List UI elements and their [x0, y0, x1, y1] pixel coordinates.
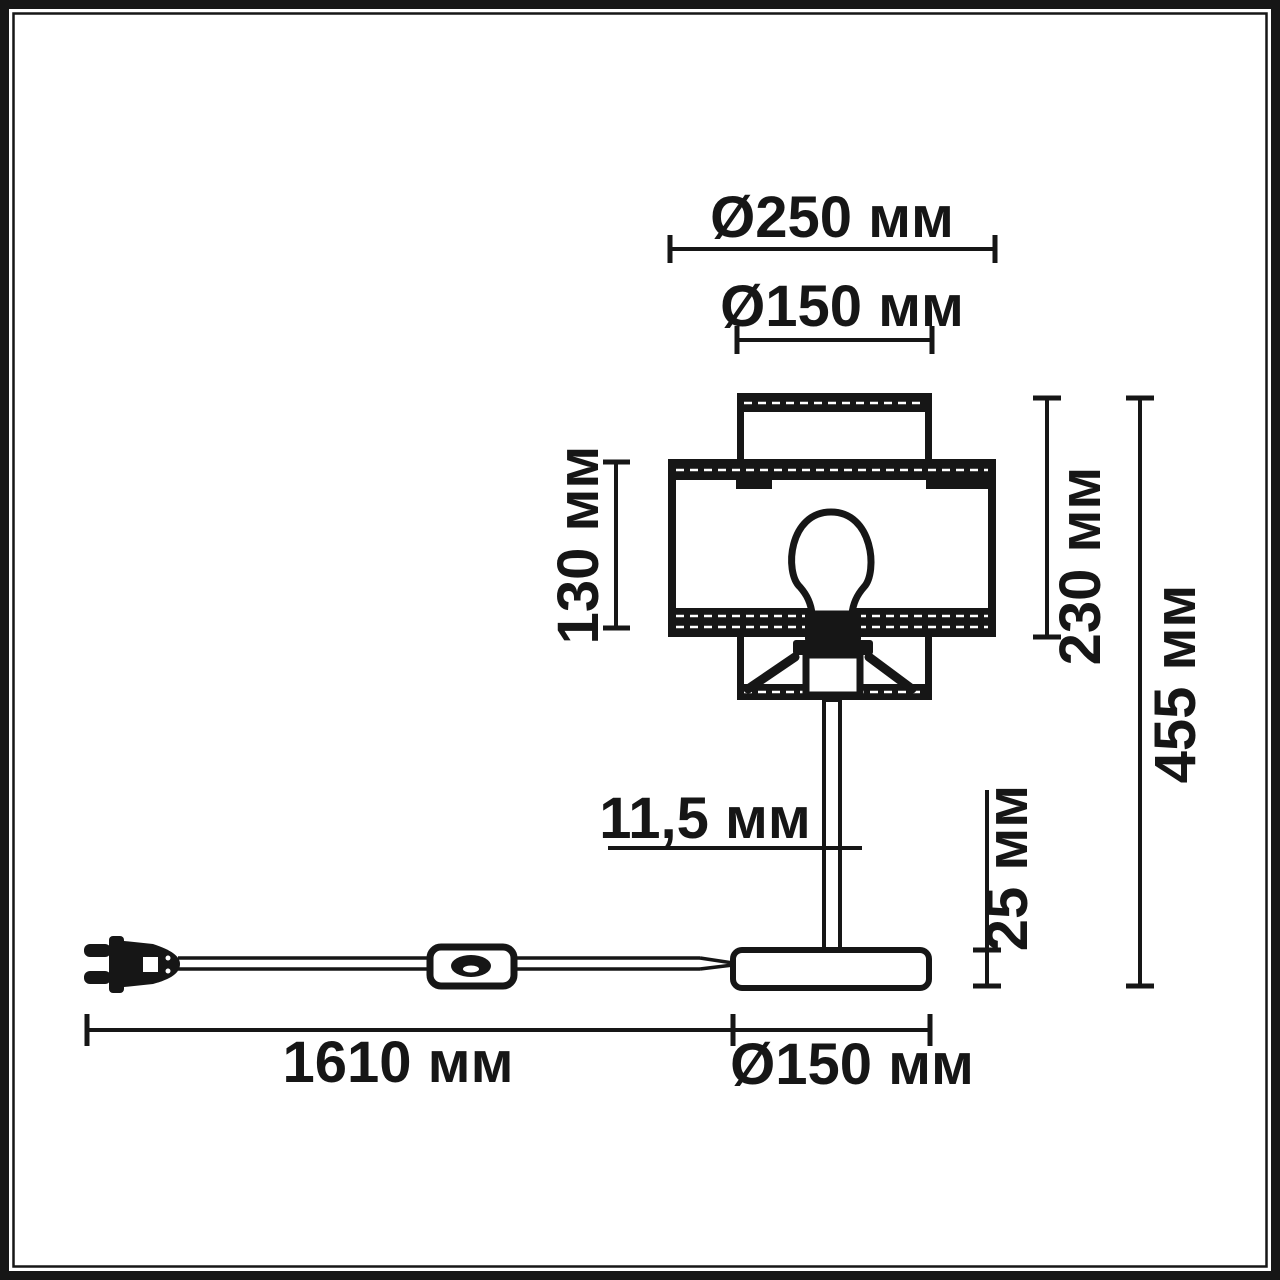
dim-shade-outer-diameter: Ø250 мм [670, 185, 995, 263]
cable-segment-left [178, 958, 430, 969]
dim-shade-outer-diameter-label: Ø250 мм [710, 185, 954, 250]
lamp-stem [824, 700, 840, 952]
dim-shade-height-label: 130 мм [546, 446, 611, 645]
socket-body [805, 612, 861, 642]
inline-switch [430, 947, 514, 986]
dim-total-height: 455 мм [1126, 398, 1208, 986]
shade-inner-right-wall-upper [925, 393, 932, 462]
plug-rivet-top [166, 956, 171, 961]
shade-top-tab-left [736, 480, 772, 489]
dim-base-diameter-label: Ø150 мм [730, 1032, 974, 1097]
dim-base-height: 25 мм [973, 785, 1040, 986]
cable-taper-into-base [700, 958, 733, 969]
power-plug [84, 936, 180, 993]
plug-rivet-bottom [166, 969, 171, 974]
dim-total-height-label: 455 мм [1143, 585, 1208, 784]
switch-button-highlight [463, 966, 479, 973]
plug-prong-bottom [84, 971, 111, 984]
shade-top-tab-right [926, 480, 988, 489]
dim-shade-top-diameter: Ø150 мм [720, 274, 964, 354]
light-bulb [792, 512, 871, 614]
dim-cable-length-label: 1610 мм [283, 1030, 514, 1095]
dim-shade-height: 130 мм [546, 446, 630, 645]
cable-segment-right [514, 958, 700, 969]
shade-inner-left-wall-upper [737, 393, 744, 462]
lamp-base [733, 950, 929, 988]
dim-shade-assembly-height: 230 мм [1033, 398, 1113, 665]
plug-face-plate [109, 936, 124, 993]
dim-base-height-label: 25 мм [975, 785, 1040, 951]
dim-bottom-row: 1610 мм Ø150 мм [87, 1014, 974, 1097]
dim-shade-assembly-height-label: 230 мм [1048, 467, 1113, 666]
socket-holder [806, 655, 860, 695]
dim-shade-top-diameter-label: Ø150 мм [720, 274, 964, 339]
plug-body-notch [143, 957, 158, 972]
lamp-dimension-drawing: Ø250 мм Ø150 мм 130 мм 230 мм 455 мм 25 … [0, 0, 1280, 1280]
plug-prong-top [84, 944, 111, 957]
dim-stem-diameter-label: 11,5 мм [599, 786, 811, 851]
